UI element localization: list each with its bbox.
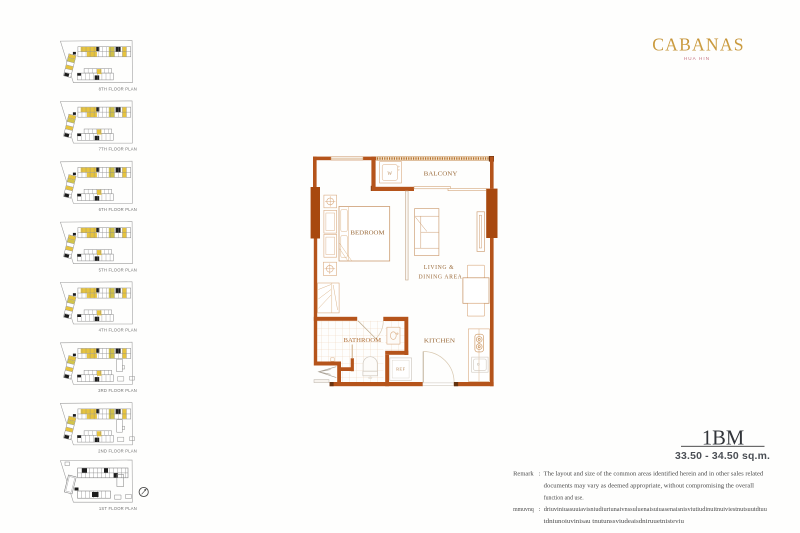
svg-text:HUA HIN: HUA HIN: [684, 56, 710, 61]
svg-text:5TH FLOOR PLAN: 5TH FLOOR PLAN: [99, 267, 137, 272]
svg-text:driuviniuasuuiavisniudiuriunai: driuviniuasuuiavisniudiuriunaivnssuluena…: [544, 506, 768, 513]
svg-text:7TH FLOOR PLAN: 7TH FLOOR PLAN: [99, 147, 137, 152]
svg-text:CABANAS: CABANAS: [652, 35, 744, 55]
svg-text:1ST FLOOR PLAN: 1ST FLOOR PLAN: [99, 506, 137, 511]
svg-text:documents may vary as deemed a: documents may vary as deemed appropriate…: [544, 483, 754, 490]
svg-text:3RD FLOOR PLAN: 3RD FLOOR PLAN: [98, 388, 137, 393]
svg-text:W: W: [387, 172, 392, 177]
svg-text:Remark: Remark: [513, 470, 534, 477]
svg-text:BALCONY: BALCONY: [424, 171, 458, 178]
svg-text:REF: REF: [396, 367, 405, 372]
svg-text:function and use.: function and use.: [544, 495, 584, 502]
svg-text:4TH FLOOR PLAN: 4TH FLOOR PLAN: [99, 328, 137, 333]
svg-text:The layout and size of the com: The layout and size of the common areas …: [544, 470, 764, 477]
svg-text:KITCHEN: KITCHEN: [424, 337, 455, 344]
svg-text:mmuvnq: mmuvnq: [513, 506, 534, 513]
svg-text:BEDROOM: BEDROOM: [350, 229, 384, 236]
svg-text:tdniunoiuvinisau tnutunssviude: tdniunoiuvinisau tnutunssviudeaisdniruue…: [544, 518, 685, 525]
svg-text:8TH FLOOR PLAN: 8TH FLOOR PLAN: [99, 86, 137, 91]
svg-text::: :: [539, 506, 541, 513]
svg-text:33.50 - 34.50 sq.m.: 33.50 - 34.50 sq.m.: [675, 451, 770, 462]
svg-text:2ND FLOOR PLAN: 2ND FLOOR PLAN: [98, 449, 137, 454]
svg-text::: :: [539, 470, 541, 477]
svg-text:DINING AREA: DINING AREA: [419, 274, 463, 281]
svg-text:LIVING &: LIVING &: [424, 264, 455, 271]
svg-text:6TH FLOOR PLAN: 6TH FLOOR PLAN: [99, 207, 137, 212]
svg-text:BATHROOM: BATHROOM: [344, 337, 382, 344]
